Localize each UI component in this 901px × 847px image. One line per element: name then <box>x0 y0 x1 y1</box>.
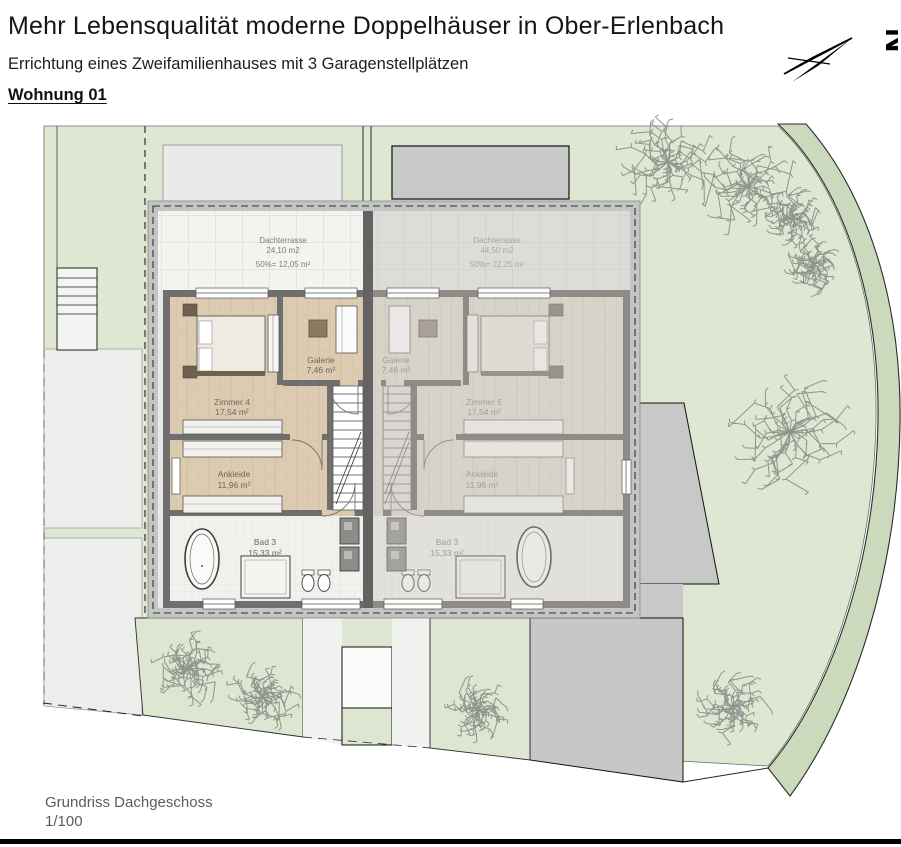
driveway <box>530 618 683 782</box>
floor-plan: Dachterrasse 24,10 m2 50%= 12,05 m² Dach… <box>148 201 640 618</box>
svg-text:7,46 m²: 7,46 m² <box>307 365 336 375</box>
drawing-scale: 1/100 <box>45 812 213 831</box>
svg-text:50%= 12,05 m²: 50%= 12,05 m² <box>256 260 311 269</box>
svg-text:24,10 m2: 24,10 m2 <box>266 246 300 255</box>
plan-sheet: Dachterrasse 24,10 m2 50%= 12,05 m² Dach… <box>0 0 901 847</box>
label-bad-right: Bad 3 <box>436 537 458 547</box>
neighbor-area-left-lower <box>44 538 142 715</box>
label-galerie-right: Galerie <box>382 355 410 365</box>
neighbor-building-left <box>163 145 342 201</box>
svg-text:15,33 m²: 15,33 m² <box>430 548 464 558</box>
svg-text:15,33 m²: 15,33 m² <box>248 548 282 558</box>
label-ankleide-left: Ankleide <box>218 469 251 479</box>
exterior-stair <box>57 268 97 350</box>
drawing-title: Grundriss Dachgeschoss <box>45 793 213 812</box>
svg-text:44,50 m2: 44,50 m2 <box>480 246 514 255</box>
north-arrow-icon: N <box>778 14 898 94</box>
label-galerie-left: Galerie <box>307 355 335 365</box>
neighbor-area-left <box>44 349 142 528</box>
unit-label: Wohnung 01 <box>8 86 107 105</box>
page-title: Mehr Lebensqualität moderne Doppelhäuser… <box>8 12 724 41</box>
svg-text:11,96 m²: 11,96 m² <box>466 480 499 490</box>
svg-text:11,96 m²: 11,96 m² <box>218 480 251 490</box>
page-subtitle: Errichtung eines Zweifamilienhauses mit … <box>8 55 468 74</box>
page-bottom-rule <box>0 839 901 844</box>
north-letter: N <box>878 28 898 53</box>
entry-path <box>342 647 392 708</box>
site-plan: Dachterrasse 24,10 m2 50%= 12,05 m² Dach… <box>0 0 901 847</box>
svg-text:50%= 22,25 m²: 50%= 22,25 m² <box>470 260 525 269</box>
neighbor-building-right <box>392 146 569 199</box>
label-bad-left: Bad 3 <box>254 537 276 547</box>
label-terrace-left: Dachterrasse <box>259 236 307 245</box>
label-terrace-right: Dachterrasse <box>473 236 521 245</box>
svg-text:17,54 m²: 17,54 m² <box>215 407 249 417</box>
stair-right <box>383 386 411 510</box>
terrace-left <box>158 211 363 290</box>
title-block: Grundriss Dachgeschoss 1/100 <box>45 793 213 831</box>
label-ankleide-right: Ankleide <box>466 469 499 479</box>
label-zimmer5: Zimmer 5 <box>466 397 502 407</box>
label-zimmer4: Zimmer 4 <box>214 397 250 407</box>
front-garden-mid <box>430 618 530 760</box>
svg-text:17,54 m²: 17,54 m² <box>467 407 501 417</box>
svg-text:7,46 m²: 7,46 m² <box>382 365 411 375</box>
